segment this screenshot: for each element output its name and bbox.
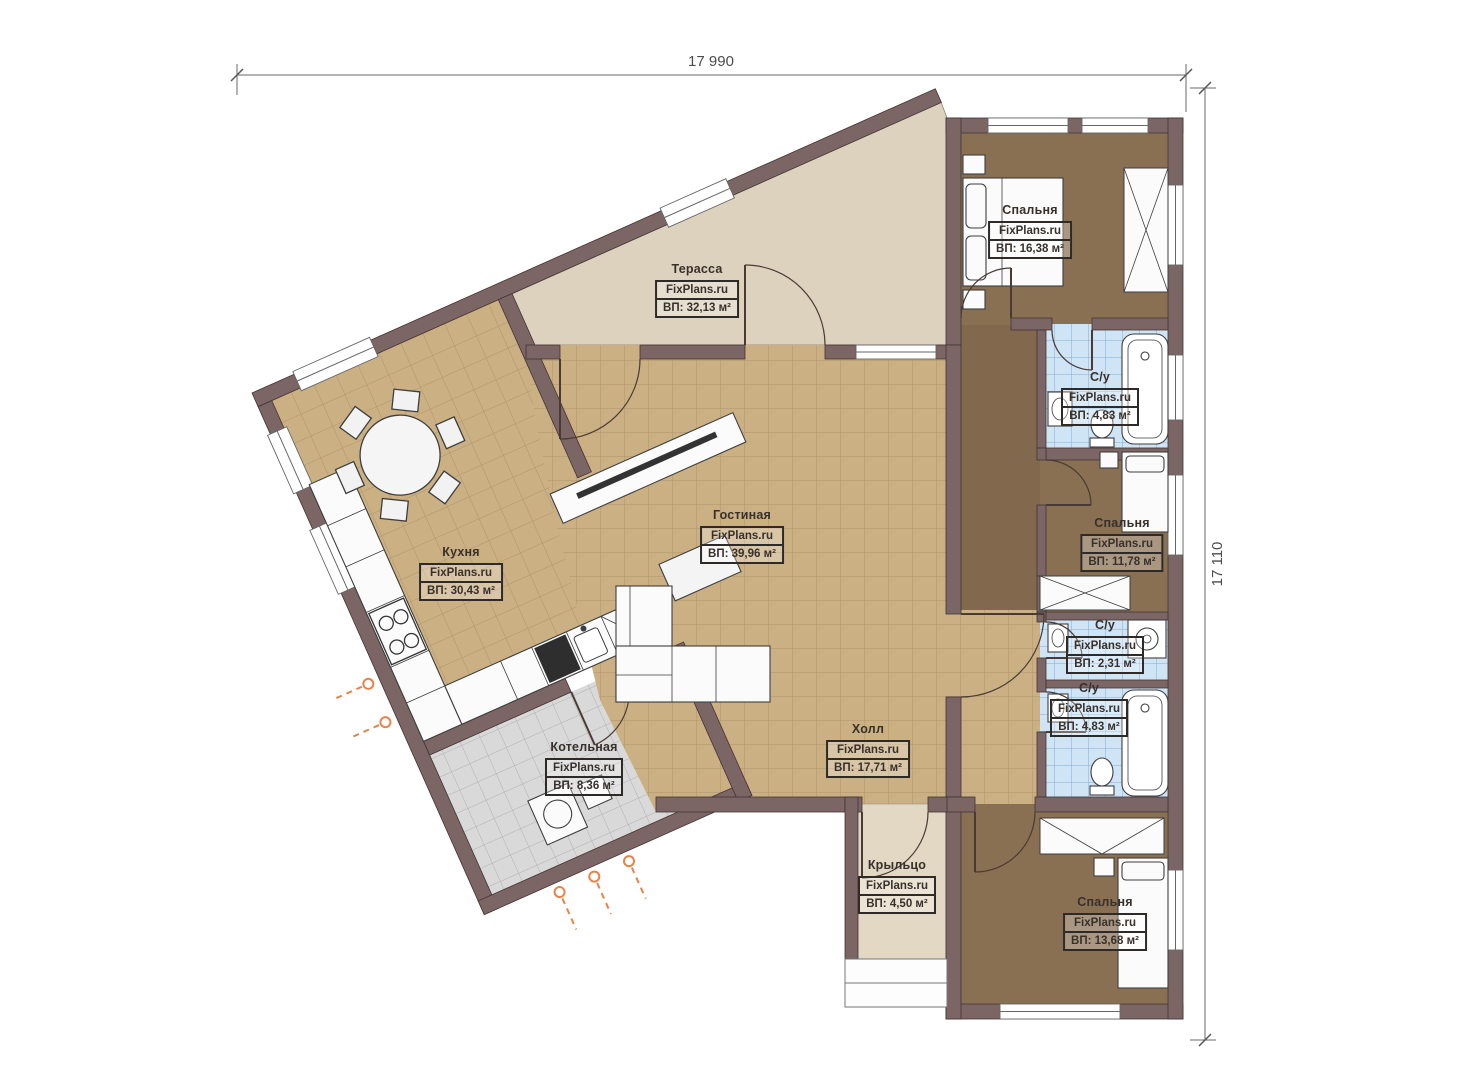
room-name: Терасса bbox=[655, 262, 739, 278]
room-info-box: FixPlans.ru ВП: 17,71 м² bbox=[826, 740, 910, 779]
sink-icon bbox=[1048, 624, 1068, 652]
room-label-bathroom-lower: С/у FixPlans.ru ВП: 4,83 м² bbox=[1050, 681, 1128, 737]
room-info-box: FixPlans.ru ВП: 39,96 м² bbox=[700, 526, 784, 565]
room-label-bedroom-top: Спальня FixPlans.ru ВП: 16,38 м² bbox=[988, 203, 1072, 259]
room-info-box: FixPlans.ru ВП: 30,43 м² bbox=[419, 563, 503, 602]
watermark: FixPlans.ru bbox=[1052, 701, 1126, 719]
room-area: ВП: 17,71 м² bbox=[828, 760, 908, 776]
room-area: ВП: 16,38 м² bbox=[990, 241, 1070, 257]
watermark: FixPlans.ru bbox=[860, 878, 934, 896]
watermark: FixPlans.ru bbox=[990, 223, 1070, 241]
room-name: Гостиная bbox=[700, 508, 784, 524]
pillow bbox=[966, 236, 986, 280]
room-area: ВП: 11,78 м² bbox=[1082, 554, 1161, 570]
room-name: Спальня bbox=[988, 203, 1072, 219]
room-label-kitchen: Кухня FixPlans.ru ВП: 30,43 м² bbox=[419, 545, 503, 601]
room-name: Крыльцо bbox=[858, 858, 936, 874]
room-name: С/у bbox=[1066, 618, 1144, 634]
watermark: FixPlans.ru bbox=[1065, 915, 1145, 933]
room-label-porch: Крыльцо FixPlans.ru ВП: 4,50 м² bbox=[858, 858, 936, 914]
pillow bbox=[966, 184, 986, 228]
room-name: Котельная bbox=[545, 740, 623, 756]
room-name: С/у bbox=[1050, 681, 1128, 697]
dimension-right-value: 17 110 bbox=[1209, 542, 1226, 587]
room-name: Кухня bbox=[419, 545, 503, 561]
pillow bbox=[1126, 456, 1164, 472]
room-area: ВП: 4,83 м² bbox=[1063, 408, 1137, 424]
room-name: С/у bbox=[1061, 370, 1139, 386]
corridor-floor bbox=[953, 325, 1045, 617]
watermark: FixPlans.ru bbox=[547, 760, 621, 778]
room-label-bathroom-top: С/у FixPlans.ru ВП: 4,83 м² bbox=[1061, 370, 1139, 426]
room-area: ВП: 4,83 м² bbox=[1052, 719, 1126, 735]
room-info-box: FixPlans.ru ВП: 32,13 м² bbox=[655, 280, 739, 319]
watermark: FixPlans.ru bbox=[1082, 536, 1161, 554]
room-label-bedroom-bottom: Спальня FixPlans.ru ВП: 13,68 м² bbox=[1063, 895, 1147, 951]
dimension-top bbox=[231, 64, 1192, 112]
wardrobe-icon bbox=[1124, 168, 1168, 292]
nightstand bbox=[963, 290, 985, 309]
room-name: Спальня bbox=[1063, 895, 1147, 911]
room-label-living-room: Гостиная FixPlans.ru ВП: 39,96 м² bbox=[700, 508, 784, 564]
wardrobe-icon bbox=[1040, 818, 1164, 854]
room-info-box: FixPlans.ru ВП: 4,83 м² bbox=[1061, 388, 1139, 427]
room-info-box: FixPlans.ru ВП: 16,38 м² bbox=[988, 221, 1072, 260]
room-info-box: FixPlans.ru ВП: 8,36 м² bbox=[545, 758, 623, 797]
room-area: ВП: 13,68 м² bbox=[1065, 933, 1145, 949]
watermark: FixPlans.ru bbox=[702, 528, 782, 546]
pillow bbox=[1122, 862, 1164, 880]
nightstand bbox=[963, 155, 985, 174]
wardrobe-icon bbox=[1040, 576, 1130, 610]
bathtub-icon bbox=[1122, 690, 1168, 796]
room-info-box: FixPlans.ru ВП: 4,83 м² bbox=[1050, 699, 1128, 738]
nightstand bbox=[1100, 452, 1118, 468]
room-area: ВП: 39,96 м² bbox=[702, 546, 782, 562]
room-area: ВП: 32,13 м² bbox=[657, 300, 737, 316]
room-name: Холл bbox=[826, 722, 910, 738]
floor-plan-page: 17 990 17 110 Терасса FixPlans.ru ВП: 32… bbox=[0, 0, 1473, 1080]
porch-steps bbox=[845, 959, 947, 1007]
watermark: FixPlans.ru bbox=[828, 742, 908, 760]
room-area: ВП: 4,50 м² bbox=[860, 896, 934, 912]
room-label-bedroom-middle: Спальня FixPlans.ru ВП: 11,78 м² bbox=[1080, 516, 1163, 572]
room-info-box: FixPlans.ru ВП: 11,78 м² bbox=[1080, 534, 1163, 573]
room-area: ВП: 30,43 м² bbox=[421, 583, 501, 599]
room-info-box: FixPlans.ru ВП: 13,68 м² bbox=[1063, 913, 1147, 952]
toilet-icon bbox=[1090, 758, 1114, 795]
room-area: ВП: 2,31 м² bbox=[1068, 656, 1142, 672]
room-area: ВП: 8,36 м² bbox=[547, 778, 621, 794]
watermark: FixPlans.ru bbox=[1068, 638, 1142, 656]
room-info-box: FixPlans.ru ВП: 4,50 м² bbox=[858, 876, 936, 915]
watermark: FixPlans.ru bbox=[1063, 390, 1137, 408]
room-label-boiler-room: Котельная FixPlans.ru ВП: 8,36 м² bbox=[545, 740, 623, 796]
room-name: Спальня bbox=[1080, 516, 1163, 532]
room-info-box: FixPlans.ru ВП: 2,31 м² bbox=[1066, 636, 1144, 675]
watermark: FixPlans.ru bbox=[657, 282, 737, 300]
watermark: FixPlans.ru bbox=[421, 565, 501, 583]
dimension-top-value: 17 990 bbox=[688, 53, 734, 70]
nightstand bbox=[1094, 858, 1114, 876]
room-label-bathroom-middle: С/у FixPlans.ru ВП: 2,31 м² bbox=[1066, 618, 1144, 674]
room-label-hall: Холл FixPlans.ru ВП: 17,71 м² bbox=[826, 722, 910, 778]
room-label-terrace: Терасса FixPlans.ru ВП: 32,13 м² bbox=[655, 262, 739, 318]
